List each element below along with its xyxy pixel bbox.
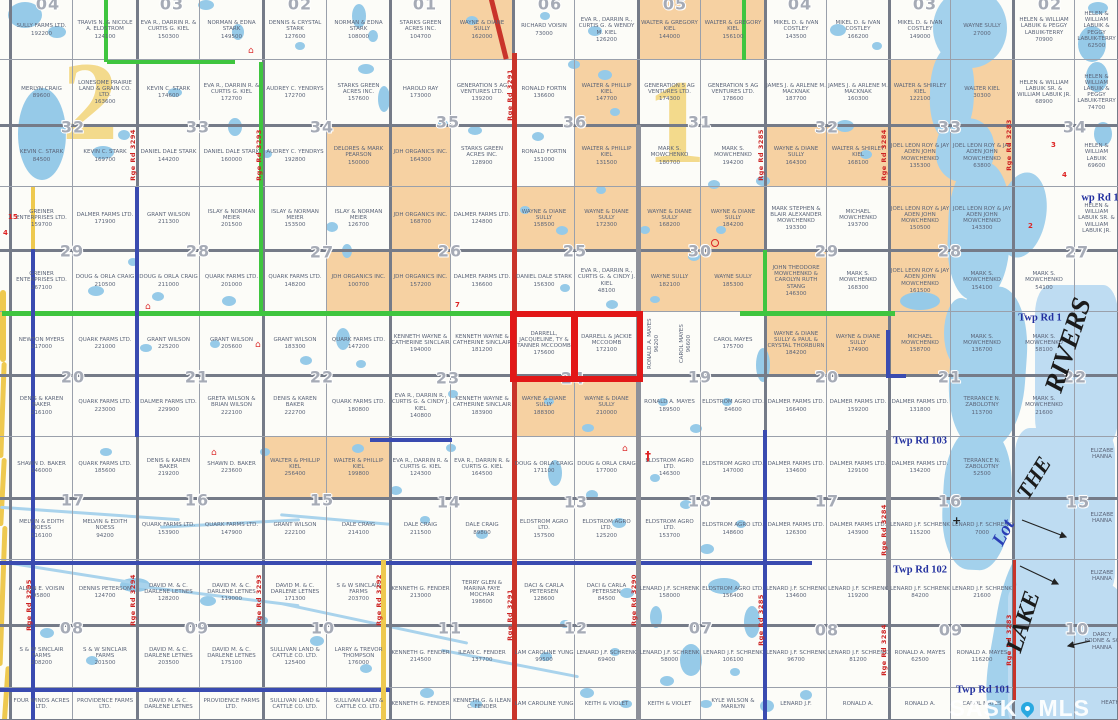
saskmls-watermark: SASK MLS: [950, 695, 1090, 720]
watermark-mls: MLS: [1038, 695, 1090, 720]
map-canvas[interactable]: 21 SULLY FARMS LTD.192200TRAVIS N. & NIC…: [0, 0, 1118, 720]
selected-parcel-divider: [571, 311, 578, 382]
location-pin-icon: [1019, 699, 1037, 717]
watermark-sask: SASK: [950, 695, 1018, 720]
